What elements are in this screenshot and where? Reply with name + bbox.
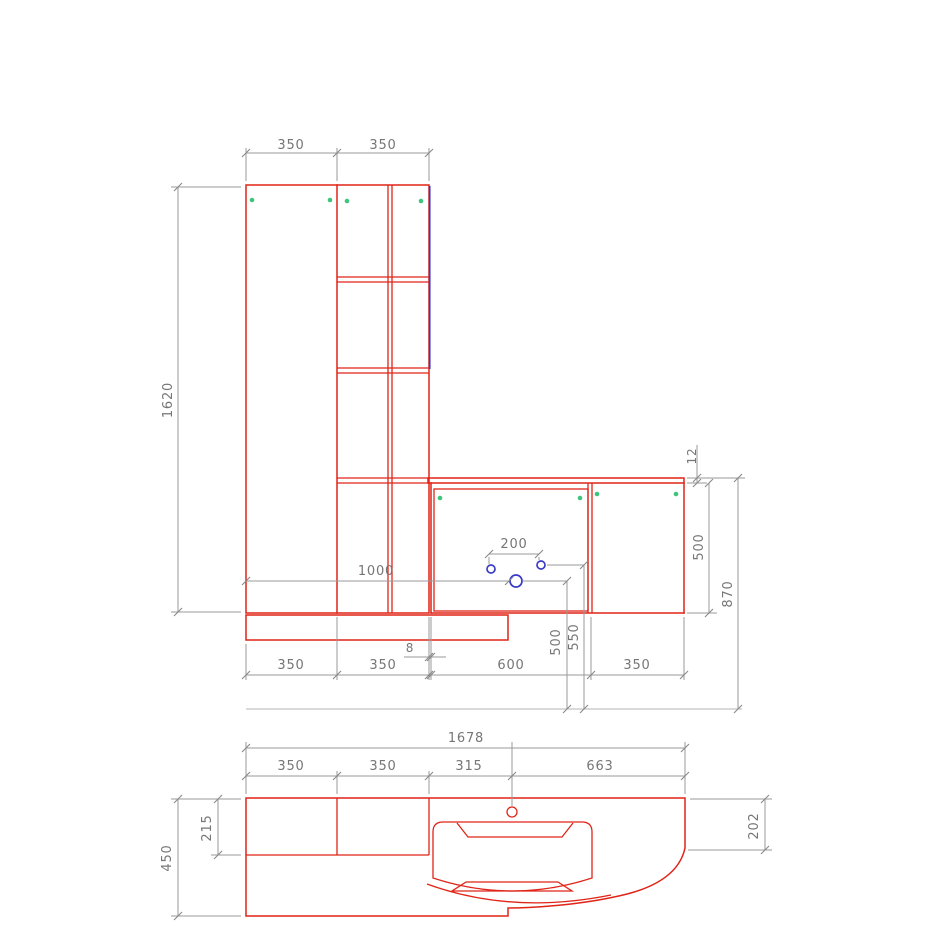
dim-label-upper-depth: 215 — [200, 814, 215, 841]
plan-counter-outline — [246, 798, 685, 916]
dim-label-hole-spacing: 200 — [500, 537, 527, 552]
dim-label-worktop-height: 870 — [721, 580, 736, 607]
dim-label-bottom-w1: 350 — [277, 658, 304, 673]
dim-label-plan-w2: 350 — [369, 759, 396, 774]
drawing-svg: 350 350 1620 12 500 870 — [0, 0, 950, 950]
dim-label-bottom-w4: 350 — [623, 658, 650, 673]
vanity-unit-outline — [428, 478, 684, 613]
faucet-hole-left — [487, 565, 495, 573]
dim-label-faucet-height: 550 — [567, 623, 582, 650]
dim-label-base-height: 500 — [692, 533, 707, 560]
plan-view: 1678 350 350 315 663 450 215 — [160, 731, 772, 920]
dim-label-hole-from-left: 1000 — [358, 564, 394, 579]
dim-label-top-right: 350 — [369, 138, 396, 153]
basin-back-ledge — [457, 823, 573, 837]
faucet-hole-plan — [507, 807, 517, 817]
dim-label-bottom-w3: 600 — [497, 658, 524, 673]
dim-label-total-width: 1678 — [448, 731, 484, 746]
drain-hole — [510, 575, 522, 587]
basin-front-lip — [427, 884, 611, 903]
dim-label-height: 1620 — [161, 382, 176, 418]
mounting-holes — [487, 561, 545, 587]
dim-label-plan-w1: 350 — [277, 759, 304, 774]
dim-label-plan-w4: 663 — [586, 759, 613, 774]
plan-interior-lines — [246, 798, 429, 855]
faucet-hole-right — [537, 561, 545, 569]
hinge-markers-elevation — [250, 198, 679, 501]
dim-label-right-depth: 202 — [747, 812, 762, 839]
basin-front-ledge — [452, 882, 572, 891]
dim-label-bottom-w2: 350 — [369, 658, 396, 673]
dim-label-gap: 8 — [406, 641, 414, 655]
dim-label-top-left: 350 — [277, 138, 304, 153]
plinth-outline — [246, 615, 508, 640]
dim-label-drain-height: 500 — [549, 628, 564, 655]
dim-label-worktop-thickness: 12 — [685, 448, 699, 465]
elevation-dimensions: 350 350 1620 12 500 870 — [161, 138, 745, 713]
dim-label-plan-w3: 315 — [455, 759, 482, 774]
dim-label-depth: 450 — [160, 844, 175, 871]
front-elevation-view: 350 350 1620 12 500 870 — [161, 138, 745, 713]
tall-cabinet-outline — [246, 185, 429, 613]
basin-outline — [427, 807, 611, 903]
technical-drawing-canvas: 350 350 1620 12 500 870 — [0, 0, 950, 950]
